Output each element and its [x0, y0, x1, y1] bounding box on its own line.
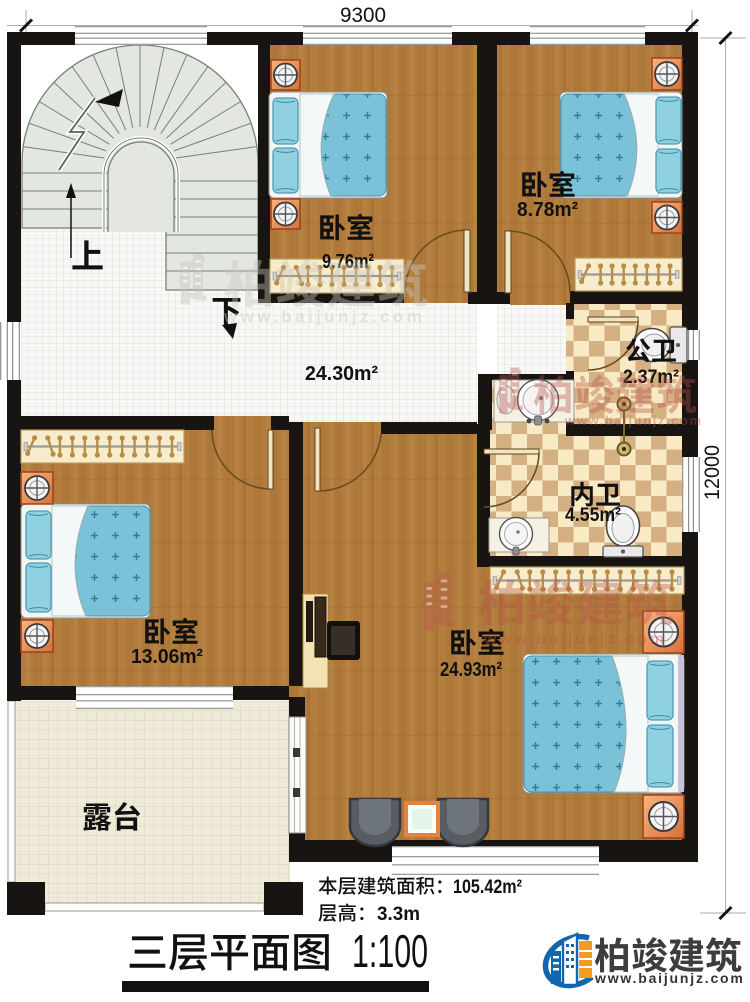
- svg-text:3.3m: 3.3m: [377, 904, 420, 925]
- svg-text:4.55m²: 4.55m²: [565, 505, 621, 526]
- svg-text:9300: 9300: [340, 4, 386, 27]
- svg-text:24.93m²: 24.93m²: [440, 659, 502, 681]
- svg-text:www.baijunjz.com: www.baijunjz.com: [564, 413, 703, 428]
- svg-text:www.baijunjz.com: www.baijunjz.com: [223, 307, 425, 326]
- svg-text:13.06m²: 13.06m²: [131, 646, 203, 668]
- svg-text:www.baijunjz.com: www.baijunjz.com: [483, 631, 667, 648]
- svg-text:12000: 12000: [701, 445, 724, 500]
- svg-text:105.42m²: 105.42m²: [453, 877, 522, 898]
- svg-text:1:100: 1:100: [352, 925, 428, 977]
- svg-text:8.78m²: 8.78m²: [517, 199, 578, 221]
- svg-text:www.baijunjz.com: www.baijunjz.com: [594, 970, 745, 986]
- svg-text:24.30m²: 24.30m²: [305, 363, 378, 385]
